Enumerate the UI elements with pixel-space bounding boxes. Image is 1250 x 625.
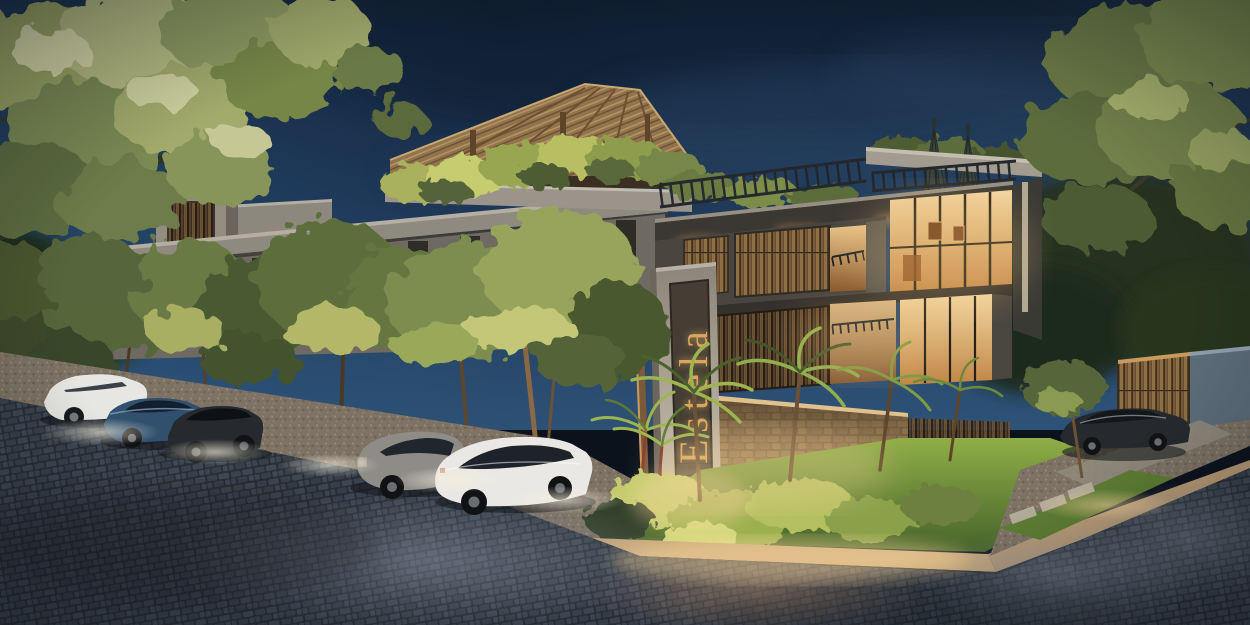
architectural-night-render: Estela Estela xyxy=(0,0,1250,625)
vignette xyxy=(0,0,1250,625)
